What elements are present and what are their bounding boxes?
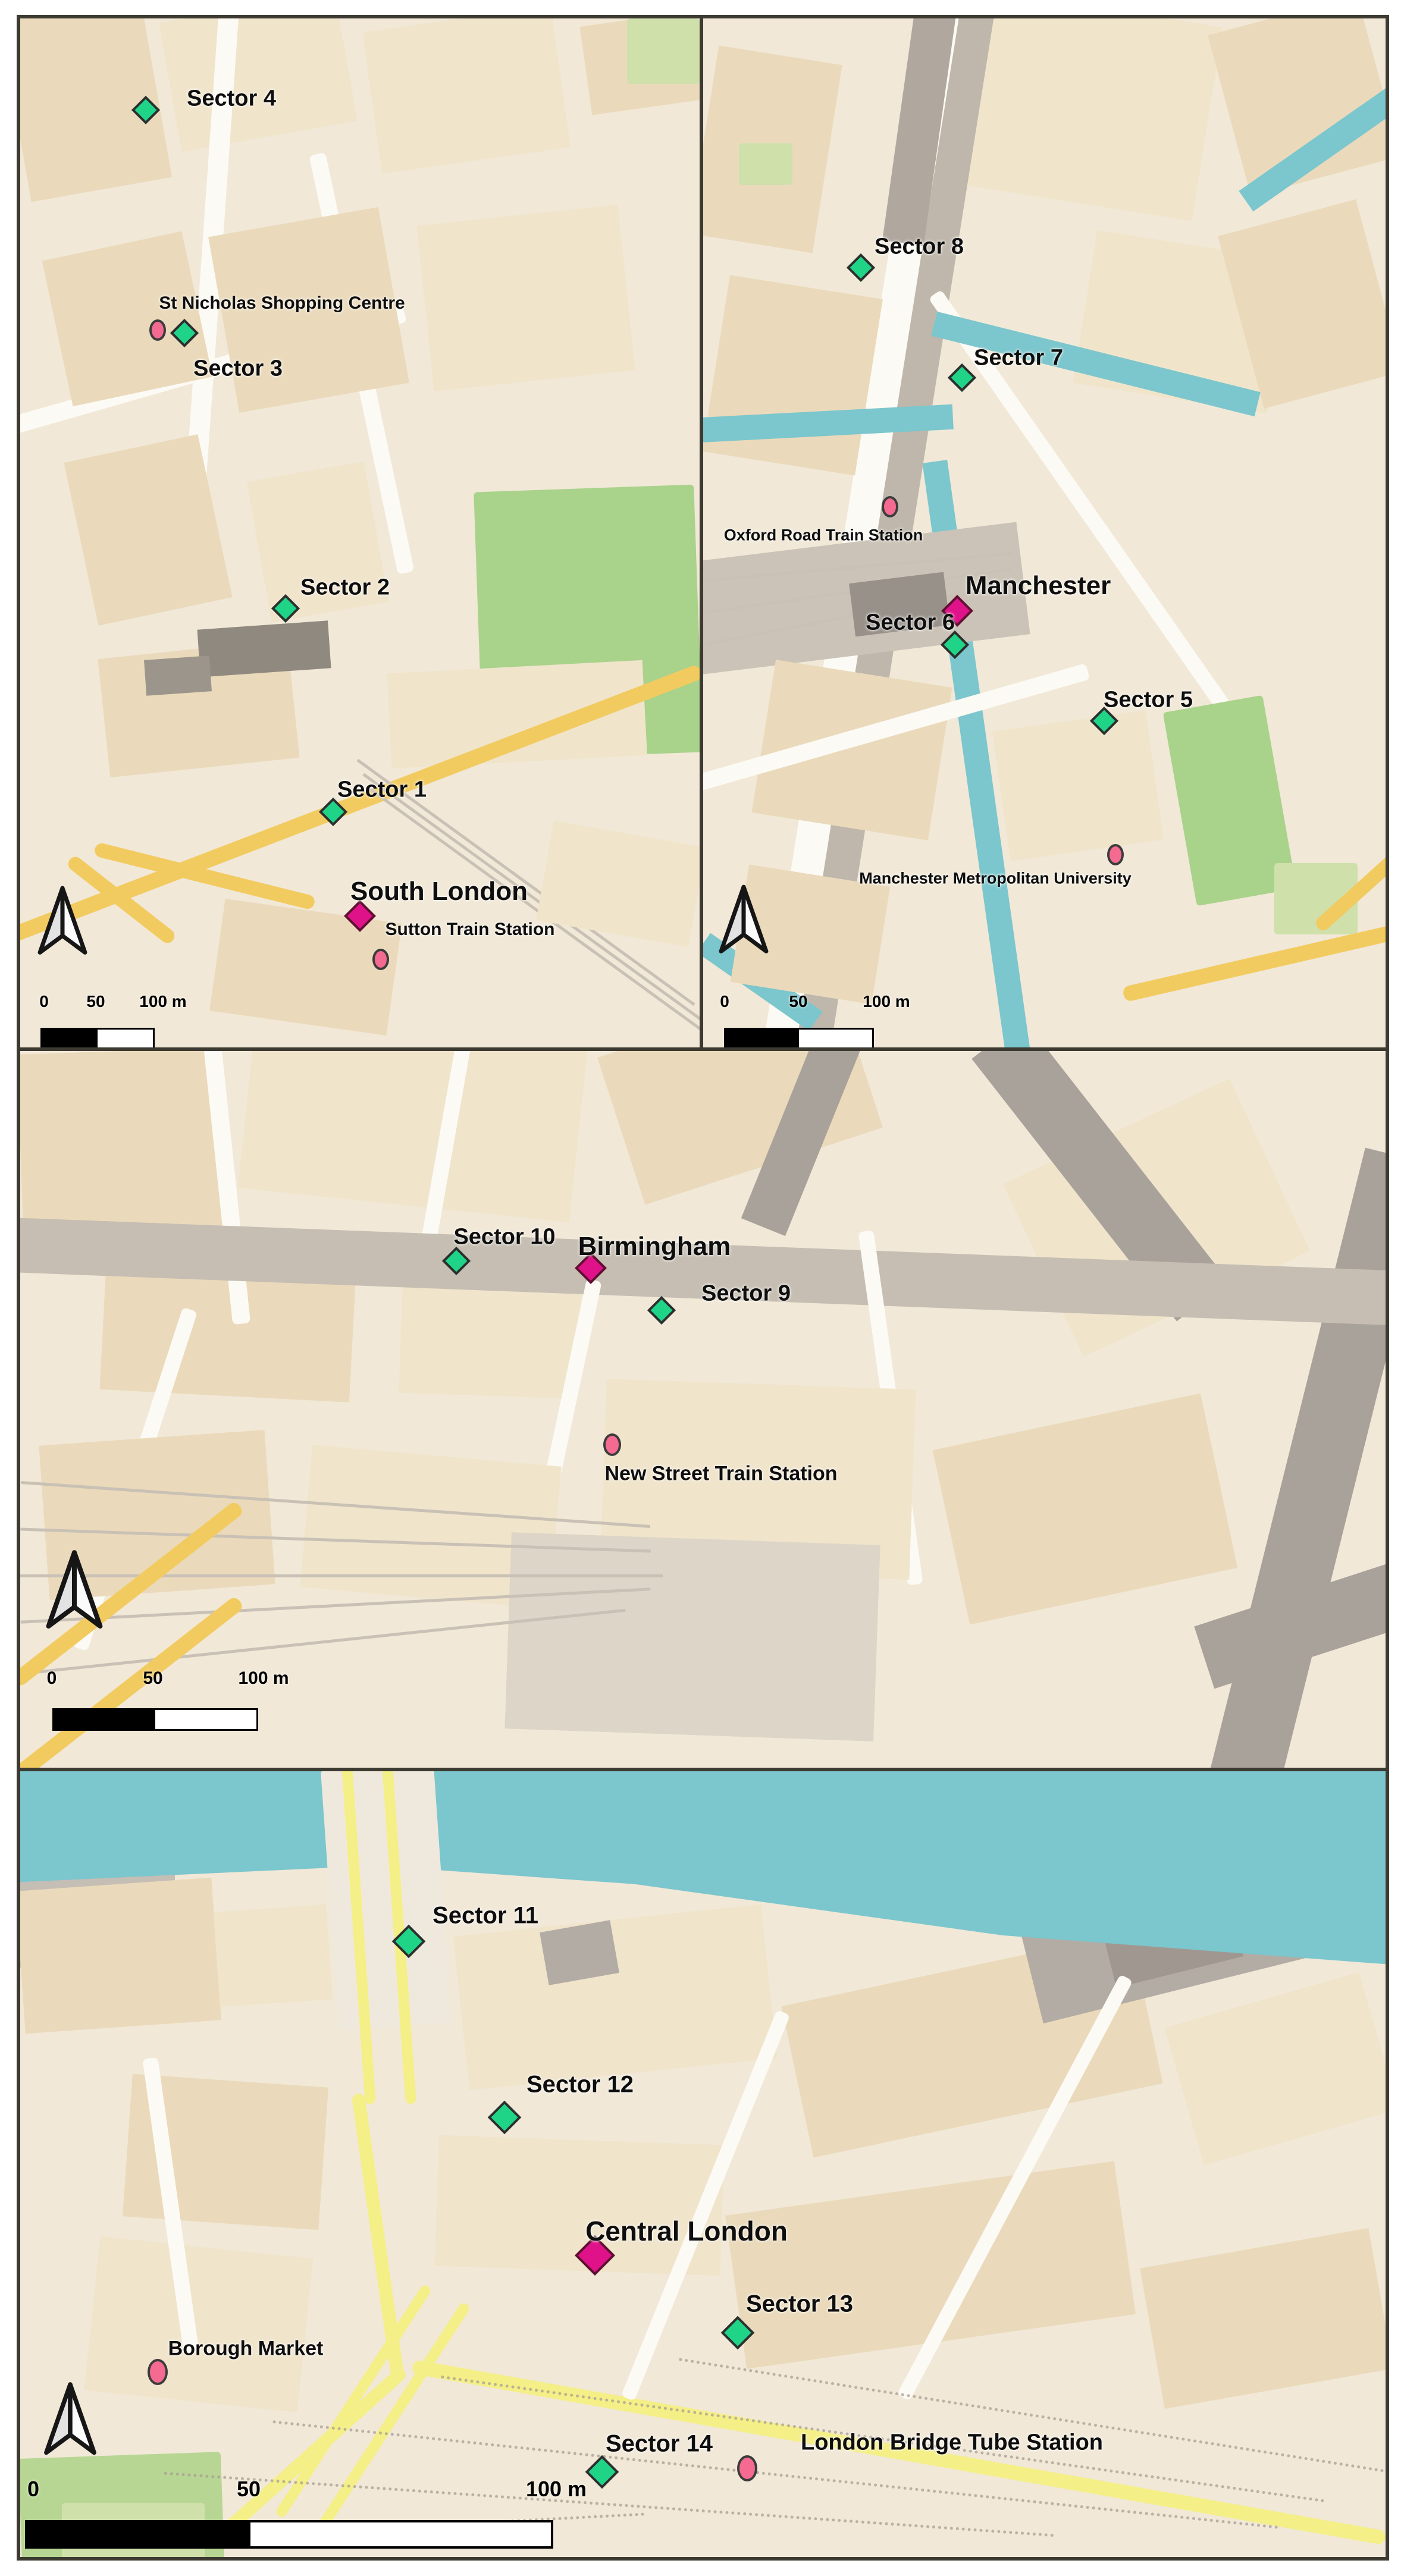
north-arrow bbox=[38, 2382, 102, 2456]
sector-13-label: Sector 13 bbox=[746, 2291, 853, 2318]
sector-14-label: Sector 14 bbox=[606, 2431, 713, 2458]
panel-central-london: Sector 11 Sector 12 Central London Secto… bbox=[17, 1768, 1389, 2561]
map-park bbox=[739, 143, 792, 185]
sector-4-label: Sector 4 bbox=[187, 86, 276, 112]
map-building bbox=[933, 1393, 1237, 1624]
sector-2-label: Sector 2 bbox=[300, 575, 390, 601]
map-station-building bbox=[197, 620, 331, 677]
map-park bbox=[627, 18, 700, 84]
north-arrow bbox=[45, 1550, 104, 1630]
map-station-building bbox=[144, 655, 212, 696]
scale-bar-white-segment bbox=[799, 1030, 872, 1047]
map-building bbox=[1140, 2228, 1389, 2409]
map-building bbox=[84, 2236, 313, 2412]
scalebar-50: 50 bbox=[86, 992, 105, 1011]
manchester-label: Manchester bbox=[966, 571, 1111, 601]
map-building bbox=[42, 231, 213, 406]
sector-12-marker bbox=[488, 2101, 522, 2135]
scalebar-0: 0 bbox=[39, 992, 49, 1011]
sector-8-label: Sector 8 bbox=[875, 234, 964, 260]
manchester-met-uni-label: Manchester Metropolitan University bbox=[859, 870, 1132, 888]
map-building bbox=[159, 15, 358, 152]
scale-bar bbox=[25, 2520, 553, 2549]
sector-1-label: Sector 1 bbox=[337, 777, 427, 803]
scale-bar-white-segment bbox=[98, 1030, 153, 1047]
scale-bar-white-segment bbox=[155, 1710, 256, 1729]
london-bridge-tube-marker bbox=[737, 2455, 757, 2481]
map-building bbox=[416, 205, 635, 391]
scalebar-50: 50 bbox=[143, 1668, 162, 1689]
scale-bar-black-segment bbox=[54, 1710, 155, 1729]
scalebar-100m: 100 m bbox=[526, 2477, 587, 2502]
map-building bbox=[453, 1904, 777, 2091]
sector-9-label: Sector 9 bbox=[701, 1281, 791, 1307]
sector-9-marker bbox=[647, 1296, 676, 1325]
scalebar-50: 50 bbox=[789, 992, 807, 1011]
panel-south-london: Sector 4 St Nicholas Shopping Centre Sec… bbox=[17, 15, 703, 1051]
panel-manchester: Sector 8 Sector 7 Oxford Road Train Stat… bbox=[700, 15, 1389, 1051]
scale-bar-black-segment bbox=[726, 1030, 799, 1047]
scalebar-0: 0 bbox=[27, 2477, 39, 2502]
scale-bar bbox=[40, 1028, 155, 1049]
sector-7-label: Sector 7 bbox=[974, 346, 1063, 371]
map-railway bbox=[20, 1574, 663, 1577]
sector-7-marker bbox=[948, 363, 976, 392]
st-nicholas-marker bbox=[149, 319, 166, 341]
new-street-station-marker bbox=[603, 1433, 621, 1456]
sector-8-marker bbox=[847, 253, 875, 282]
scalebar-100m: 100 m bbox=[863, 992, 910, 1011]
sector-3-label: Sector 3 bbox=[193, 356, 283, 382]
scale-bar-white-segment bbox=[250, 2522, 551, 2546]
map-building bbox=[17, 1047, 225, 1233]
scale-bar-black-segment bbox=[27, 2522, 250, 2546]
map-figure: Sector 4 St Nicholas Shopping Centre Sec… bbox=[0, 0, 1404, 2576]
scalebar-50: 50 bbox=[237, 2477, 261, 2502]
north-arrow bbox=[716, 884, 771, 955]
map-building bbox=[362, 15, 571, 174]
north-arrow bbox=[35, 886, 90, 956]
sector-6-label: Sector 6 bbox=[866, 610, 955, 636]
sector-14-marker bbox=[585, 2455, 619, 2489]
scalebar-0: 0 bbox=[47, 1668, 57, 1689]
manchester-met-uni-marker bbox=[1107, 844, 1124, 865]
panel-birmingham: Sector 10 Birmingham Sector 9 New Street… bbox=[17, 1047, 1389, 1771]
scale-bar bbox=[52, 1708, 258, 1731]
sutton-station-marker bbox=[372, 949, 389, 970]
map-building bbox=[209, 899, 402, 1036]
scalebar-100m: 100 m bbox=[139, 992, 186, 1011]
sector-5-label: Sector 5 bbox=[1104, 688, 1193, 713]
map-building bbox=[17, 1878, 221, 2034]
new-street-station-label: New Street Train Station bbox=[604, 1463, 837, 1486]
sutton-station-label: Sutton Train Station bbox=[386, 920, 555, 940]
st-nicholas-label: St Nicholas Shopping Centre bbox=[159, 293, 405, 313]
oxford-road-station-marker bbox=[882, 496, 898, 517]
map-building bbox=[992, 710, 1164, 861]
borough-market-marker bbox=[148, 2359, 168, 2385]
south-london-label: South London bbox=[350, 877, 528, 906]
map-building bbox=[214, 1904, 333, 2007]
sector-10-label: Sector 10 bbox=[453, 1225, 555, 1250]
scalebar-100m: 100 m bbox=[238, 1668, 289, 1689]
map-station-area bbox=[504, 1532, 880, 1741]
borough-market-label: Borough Market bbox=[168, 2337, 324, 2361]
sector-11-label: Sector 11 bbox=[433, 1903, 538, 1929]
oxford-road-station-label: Oxford Road Train Station bbox=[724, 526, 923, 545]
scale-bar bbox=[724, 1028, 874, 1049]
map-building bbox=[1165, 1972, 1389, 2165]
central-london-label: Central London bbox=[585, 2215, 788, 2247]
map-building bbox=[238, 1047, 588, 1222]
map-building bbox=[702, 275, 883, 476]
sector-12-label: Sector 12 bbox=[526, 2072, 634, 2098]
scalebar-0: 0 bbox=[720, 992, 729, 1011]
london-bridge-tube-label: London Bridge Tube Station bbox=[801, 2430, 1103, 2456]
scale-bar-black-segment bbox=[42, 1030, 98, 1047]
birmingham-label: Birmingham bbox=[578, 1232, 731, 1262]
